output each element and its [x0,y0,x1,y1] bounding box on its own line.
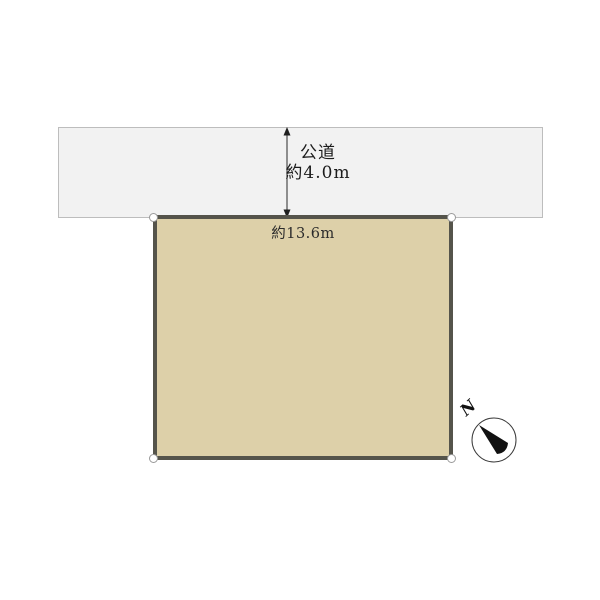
road-label: 公道 約4.0m [277,143,359,183]
corner-marker-bottom-left [149,454,158,463]
site-plan-canvas: 公道 約4.0m 約13.6m N [0,0,600,600]
corner-marker-top-left [149,213,158,222]
land-parcel [153,215,453,460]
corner-marker-top-right [447,213,456,222]
frontage-dimension-label: 約13.6m [153,222,453,243]
road-name-text: 公道 [277,143,359,163]
compass: N [452,393,518,465]
road-width-text: 約4.0m [277,163,359,183]
compass-north-label: N [456,395,481,420]
